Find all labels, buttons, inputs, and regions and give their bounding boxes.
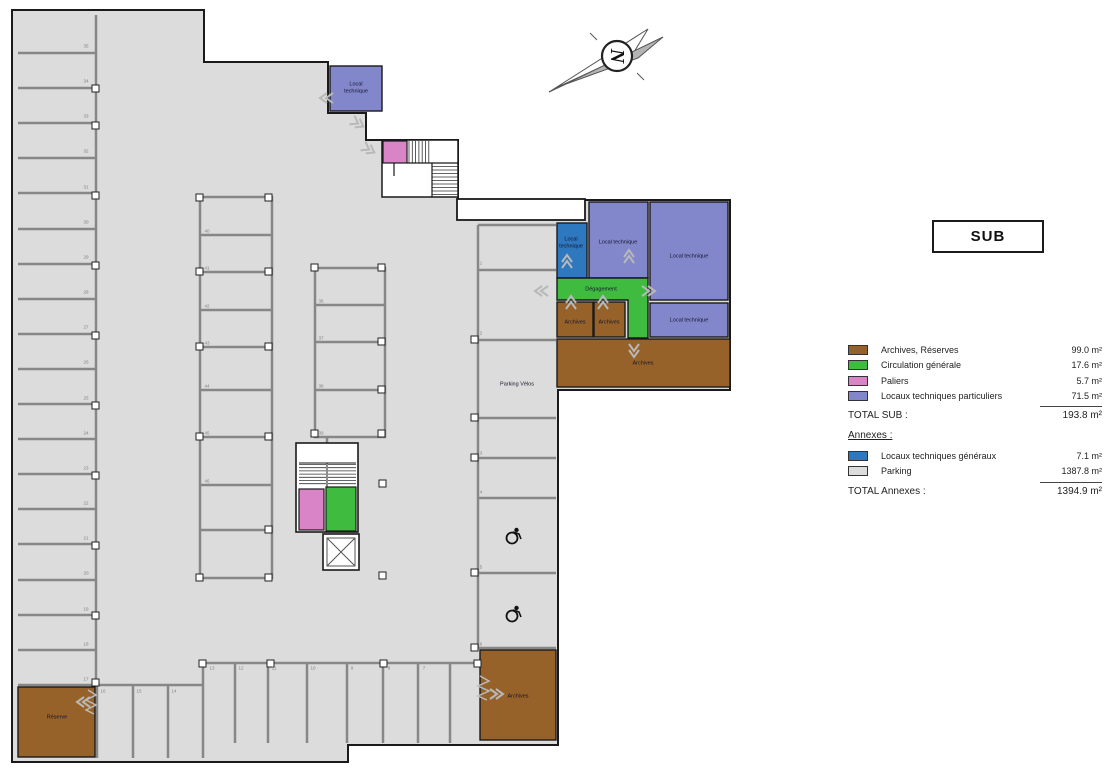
- parking-space-number: 29: [83, 255, 88, 260]
- entrance-ramp: [457, 199, 585, 220]
- stairwell-top: [382, 140, 458, 197]
- parking-space-number: 44: [204, 384, 209, 389]
- drawing-title-box: SUB: [932, 220, 1044, 253]
- room-label-degagement: Dégagement: [585, 287, 617, 294]
- legend-value: 17.6 m²: [1071, 360, 1102, 370]
- legend-row: Locaux techniques généraux7.1 m²: [848, 450, 1102, 461]
- legend-row: Archives, Réserves99.0 m²: [848, 344, 1102, 355]
- legend-swatch: [848, 391, 868, 401]
- room-local-technique-general: [557, 223, 587, 278]
- room-label-parking-velos: Parking Vélos: [500, 382, 534, 389]
- parking-space-number: 4: [480, 490, 483, 495]
- room-label-archives: Archives: [507, 694, 528, 701]
- room-circulation-central: [326, 487, 356, 531]
- parking-space-number: 6: [480, 642, 483, 647]
- legend-label: Locaux techniques généraux: [881, 451, 1076, 461]
- parking-space-number: 32: [83, 149, 88, 154]
- parking-space-number: 24: [83, 431, 88, 436]
- parking-space-number: 3: [480, 451, 483, 456]
- parking-space-number: 10: [310, 666, 315, 671]
- legend-label: Archives, Réserves: [881, 345, 1071, 355]
- room-label-archives: Archives: [564, 320, 585, 327]
- legend-label: Circulation générale: [881, 360, 1071, 370]
- legend-row: Paliers5.7 m²: [848, 375, 1102, 386]
- total-sub-value: 193.8 m²: [1063, 410, 1102, 421]
- legend-panel: Archives, Réserves99.0 m²Circulation gén…: [848, 344, 1102, 506]
- parking-space-number: 2: [480, 331, 483, 336]
- parking-space-number: 5: [480, 565, 483, 570]
- parking-space-number: 28: [83, 290, 88, 295]
- parking-space-number: 20: [83, 571, 88, 576]
- parking-space-number: 45: [204, 431, 209, 436]
- parking-space-number: 23: [83, 466, 88, 471]
- legend-label: Paliers: [881, 376, 1076, 386]
- parking-space-number: 43: [204, 341, 209, 346]
- legend-label: Locaux techniques particuliers: [881, 391, 1071, 401]
- legend-value: 7.1 m²: [1076, 451, 1102, 461]
- parking-space-number: 31: [83, 185, 88, 190]
- parking-space-number: 25: [83, 396, 88, 401]
- legend-row: Circulation générale17.6 m²: [848, 360, 1102, 371]
- room-label-reserve: Réserve: [47, 715, 67, 722]
- room-palier-top: [383, 141, 407, 163]
- elevator: [323, 534, 359, 570]
- legend-value: 1387.8 m²: [1061, 466, 1102, 476]
- parking-space-number: 9: [351, 666, 354, 671]
- parking-space-number: 40: [204, 229, 209, 234]
- parking-space-number: 8: [388, 666, 391, 671]
- room-label-local-technique: Local technique: [558, 236, 584, 249]
- parking-space-number: 16: [100, 689, 105, 694]
- legend-label: Parking: [881, 466, 1061, 476]
- legend-total-sub: TOTAL SUB : 193.8 m²: [848, 410, 1102, 421]
- room-palier-central: [299, 489, 324, 530]
- legend-row: Locaux techniques particuliers71.5 m²: [848, 391, 1102, 402]
- drawing-title: SUB: [971, 228, 1006, 245]
- legend-divider: [1040, 406, 1102, 407]
- legend-swatch: [848, 466, 868, 476]
- parking-space-number: 46: [204, 479, 209, 484]
- legend-annex-items: Locaux techniques généraux7.1 m²Parking1…: [848, 450, 1102, 477]
- room-label-archives: Archives: [632, 361, 653, 368]
- parking-space-number: 30: [83, 220, 88, 225]
- parking-space-number: 26: [83, 360, 88, 365]
- legend-value: 71.5 m²: [1071, 391, 1102, 401]
- parking-space-number: 38: [318, 384, 323, 389]
- parking-space-number: 36: [318, 299, 323, 304]
- parking-space-number: 11: [272, 666, 277, 671]
- parking-space-number: 15: [136, 689, 141, 694]
- legend-divider: [1040, 482, 1102, 483]
- room-label-local-technique: Local technique: [599, 240, 638, 247]
- room-local-technique-b: [650, 202, 728, 300]
- total-annexes-label: TOTAL Annexes :: [848, 486, 926, 497]
- total-annexes-value: 1394.9 m²: [1057, 486, 1102, 497]
- legend-swatch: [848, 360, 868, 370]
- legend-value: 5.7 m²: [1076, 376, 1102, 386]
- legend-items: Archives, Réserves99.0 m²Circulation gén…: [848, 344, 1102, 402]
- room-label-archives: Archives: [598, 320, 619, 327]
- parking-space-number: 13: [209, 666, 214, 671]
- room-label-local-technique: Local technique: [670, 318, 709, 325]
- room-label-local-technique: Local technique: [670, 254, 709, 261]
- parking-space-number: 27: [83, 325, 88, 330]
- parking-space-number: 41: [204, 266, 209, 271]
- total-sub-label: TOTAL SUB :: [848, 410, 908, 421]
- north-arrow-icon: N: [549, 29, 663, 92]
- parking-space-number: 18: [83, 642, 88, 647]
- parking-space-number: 21: [83, 536, 88, 541]
- north-letter: N: [606, 48, 628, 65]
- parking-space-number: 14: [171, 689, 176, 694]
- parking-space-number: 37: [318, 336, 323, 341]
- room-label-local-technique: Local technique: [341, 81, 371, 94]
- legend-total-annexes: TOTAL Annexes : 1394.9 m²: [848, 486, 1102, 497]
- legend-row: Parking1387.8 m²: [848, 466, 1102, 477]
- parking-space-number: 35: [83, 44, 88, 49]
- parking-space-number: 19: [83, 607, 88, 612]
- parking-space-number: 12: [238, 666, 243, 671]
- legend-swatch: [848, 451, 868, 461]
- parking-space-number: 39: [318, 431, 323, 436]
- parking-space-number: 17: [83, 677, 88, 682]
- legend-swatch: [848, 345, 868, 355]
- legend-value: 99.0 m²: [1071, 345, 1102, 355]
- stairwell-central: [296, 443, 358, 532]
- parking-space-number: 42: [204, 304, 209, 309]
- parking-space-number: 33: [83, 114, 88, 119]
- parking-space-number: 34: [83, 79, 88, 84]
- parking-space-number: 7: [423, 666, 426, 671]
- parking-space-number: 1: [480, 261, 483, 266]
- legend-swatch: [848, 376, 868, 386]
- floor-plan-page: N Local technique Local technique Local …: [0, 0, 1110, 774]
- parking-space-number: 22: [83, 501, 88, 506]
- annexes-heading: Annexes :: [848, 430, 1102, 441]
